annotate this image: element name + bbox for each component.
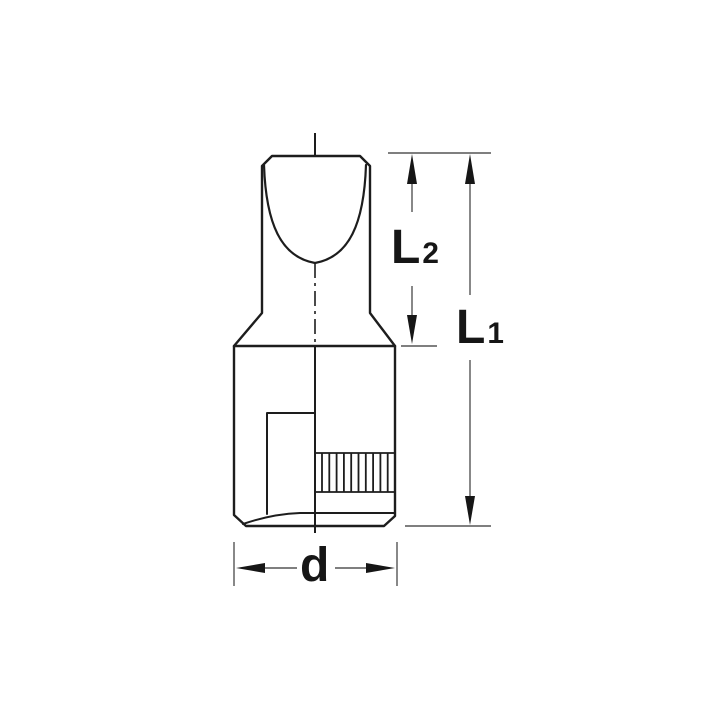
label-l2-main: L — [391, 221, 420, 274]
hatch-band-borders — [316, 453, 395, 492]
internal-step-line — [267, 413, 315, 514]
l2-arrow-down — [407, 315, 417, 344]
label-d-main: d — [300, 539, 329, 592]
hatch-band-lines — [322, 453, 388, 492]
blade-hollow-curve — [264, 165, 366, 263]
label-l2-sub: 2 — [422, 237, 439, 270]
d-arrow-right — [366, 563, 395, 573]
blade-outline — [234, 156, 395, 346]
label-l1-sub: 1 — [487, 317, 504, 350]
l1-arrow-down — [465, 496, 475, 525]
label-l2: L2 — [391, 224, 439, 272]
technical-drawing-canvas: L2 L1 d — [0, 0, 720, 720]
dimension-lines — [234, 153, 491, 586]
d-arrow-left — [236, 563, 265, 573]
label-l1: L1 — [456, 304, 504, 352]
knurl-hatch-band — [316, 453, 395, 492]
l2-arrow-up — [407, 154, 417, 184]
l1-arrow-up — [465, 154, 475, 184]
broken-section-curve — [243, 513, 316, 524]
label-l1-main: L — [456, 301, 485, 354]
label-d: d — [300, 542, 331, 590]
socket-drawing — [0, 0, 720, 720]
